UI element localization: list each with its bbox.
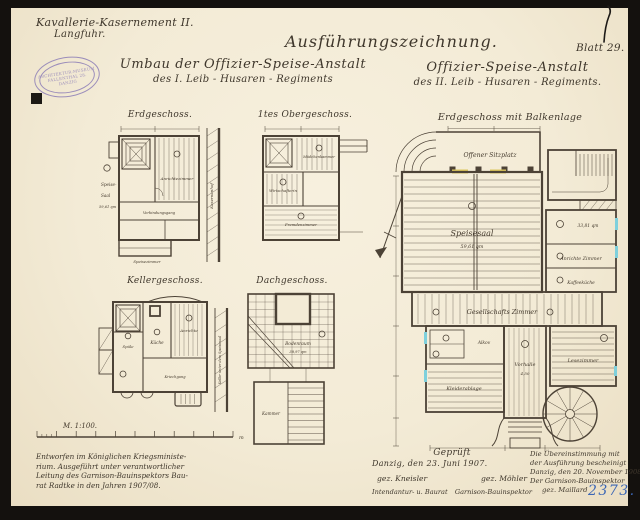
design-note-line: rat Radtke in den Jahren 1907/08. (36, 481, 231, 491)
dimension-label: 4,50 (520, 371, 530, 376)
approval-block: Geprüft Danzig, den 23. Juni 1907. gez. … (372, 448, 532, 496)
subject-right: Offizier-Speise-Anstalt des II. Leib - H… (405, 60, 610, 88)
design-note-line: Entworfen im Königlichen Kriegsministe- (36, 452, 231, 462)
side-label: Keller unter dem Speisesaal (218, 336, 222, 385)
room-label: Kleiderablage (445, 386, 481, 392)
subject-left-line2: des I. Leib - Husaren - Regiments (118, 74, 368, 85)
straight-stair-icon (548, 150, 616, 200)
room-label: Offener Sitzplatz (463, 152, 517, 159)
plan-title-obergeschoss: 1tes Obergeschoss. (240, 110, 370, 120)
plan-obergeschoss-drawing: Mädchenkammer Wirtschafterin Fremdenzimm… (245, 124, 370, 266)
plan-kellergeschoss-drawing: Spüle Küche Anrichte Kriechgang Keller u… (95, 288, 235, 418)
room-label: Anrichtezimmer (160, 176, 195, 181)
main-title: Ausführungszeichnung. (285, 32, 495, 51)
room-label: Speisezimmer (133, 259, 160, 264)
room-label: Kammer (261, 411, 281, 416)
role-right: Garnison-Bauinspektor (455, 488, 532, 496)
room-label: Alkov (477, 341, 491, 346)
inventory-number: 2373. (588, 483, 636, 499)
room-label: Bodenraum (284, 342, 311, 347)
design-note: Entworfen im Königlichen Kriegsministe- … (36, 452, 231, 490)
plan-title-balkenlage: Erdgeschoss mit Balkenlage (428, 112, 592, 123)
site-label-line2: Langfuhr. (54, 29, 106, 40)
room-label: Spüle (123, 344, 135, 349)
window-highlight-cyan (424, 370, 427, 382)
plan-title-erdgeschoss: Erdgeschoss. (95, 110, 225, 120)
room-label: Mädchenkammer (302, 155, 335, 159)
room-label: Fremdenzimmer (284, 222, 317, 227)
certification-line: Danzig, den 20. November 1908. (530, 468, 630, 477)
design-note-line: rium. Ausgeführt unter verantwortlicher (36, 462, 231, 472)
room-label: Speise- (101, 182, 117, 187)
approval-title: Geprüft (372, 448, 532, 458)
subject-right-line2: des II. Leib - Husaren - Regiments. (405, 77, 610, 88)
certification-line: Die Übereinstimmung mit (530, 450, 630, 459)
room-label: Speisesaal (451, 229, 494, 238)
subject-right-line1: Offizier-Speise-Anstalt (405, 60, 610, 75)
pen-mark-icon (596, 4, 614, 46)
room-area-label: 59,61 qm (461, 244, 484, 250)
room-label: Kaffeeküche (566, 281, 595, 286)
plan-dachgeschoss-drawing: Bodenraum 38,97 qm Kammer (240, 290, 340, 454)
room-label: Kriechgang (163, 375, 186, 379)
role-left: Intendantur- u. Baurat (372, 488, 448, 496)
room-label: Anrichte Zimmer (559, 256, 602, 262)
room-label: Wirtschafterin (269, 188, 297, 193)
certification-line: der Ausführung bescheinigt (530, 459, 630, 468)
spiral-stair-icon (116, 305, 140, 331)
plan-title-dachgeschoss: Dachgeschoss. (244, 276, 340, 286)
room-label: Lesezimmer (567, 358, 599, 364)
entrance-steps (492, 418, 558, 448)
room-label: Anrichte (179, 328, 198, 333)
approval-date: Danzig, den 23. Juni 1907. (372, 459, 532, 468)
signature-left: gez. Kneisler (377, 474, 427, 483)
scale-unit: m (239, 435, 244, 441)
site-label-line1: Kavallerie-Kasernement II. (36, 16, 194, 29)
window-highlight-cyan (615, 218, 618, 230)
plan-balkenlage-drawing: Offener Sitzplatz Speisesaal 59,61 qm 33… (390, 126, 622, 454)
side-label: Kasernenhof (209, 182, 214, 210)
sheet-frame: Kavallerie-Kasernement II. Langfuhr. ARC… (0, 0, 640, 520)
window-highlight-cyan (614, 366, 617, 376)
corner-black-square (31, 93, 42, 104)
scale-bar: M. 1:100. m (35, 420, 250, 444)
plan-title-kellergeschoss: Kellergeschoss. (103, 276, 227, 286)
subject-left-line1: Umbau der Offizier-Speise-Anstalt (118, 57, 368, 72)
room-area-label: 59,61 qm (99, 205, 117, 209)
chimney-shaft (276, 294, 310, 324)
spiral-stair-icon (543, 387, 597, 441)
window-highlight-cyan (424, 332, 427, 344)
spiral-stair-icon (122, 139, 150, 169)
north-arrow-icon (372, 192, 408, 270)
spiral-stair-icon (266, 139, 292, 167)
signature-right: gez. Möhler (481, 474, 527, 483)
scale-label: M. 1:100. (62, 422, 97, 430)
room-label: Vorhalle (515, 362, 536, 368)
room-area-label: 38,97 qm (289, 350, 307, 354)
window-highlight-cyan (615, 246, 618, 258)
room-label: Küche (149, 340, 164, 345)
room-label: Verbindungsgang (143, 211, 176, 215)
room-area-label: 33,81 qm (578, 224, 599, 229)
plan-erdgeschoss-drawing: Speise- Saal 59,61 qm Anrichtezimmer Ver… (95, 124, 227, 268)
design-note-line: Leitung des Garnison-Bauinspektors Bau- (36, 471, 231, 481)
curved-pergola-arcs (396, 132, 436, 172)
room-label: Gesellschafts Zimmer (467, 308, 538, 316)
subject-left: Umbau der Offizier-Speise-Anstalt des I.… (118, 57, 368, 85)
room-label: Saal (101, 193, 111, 198)
